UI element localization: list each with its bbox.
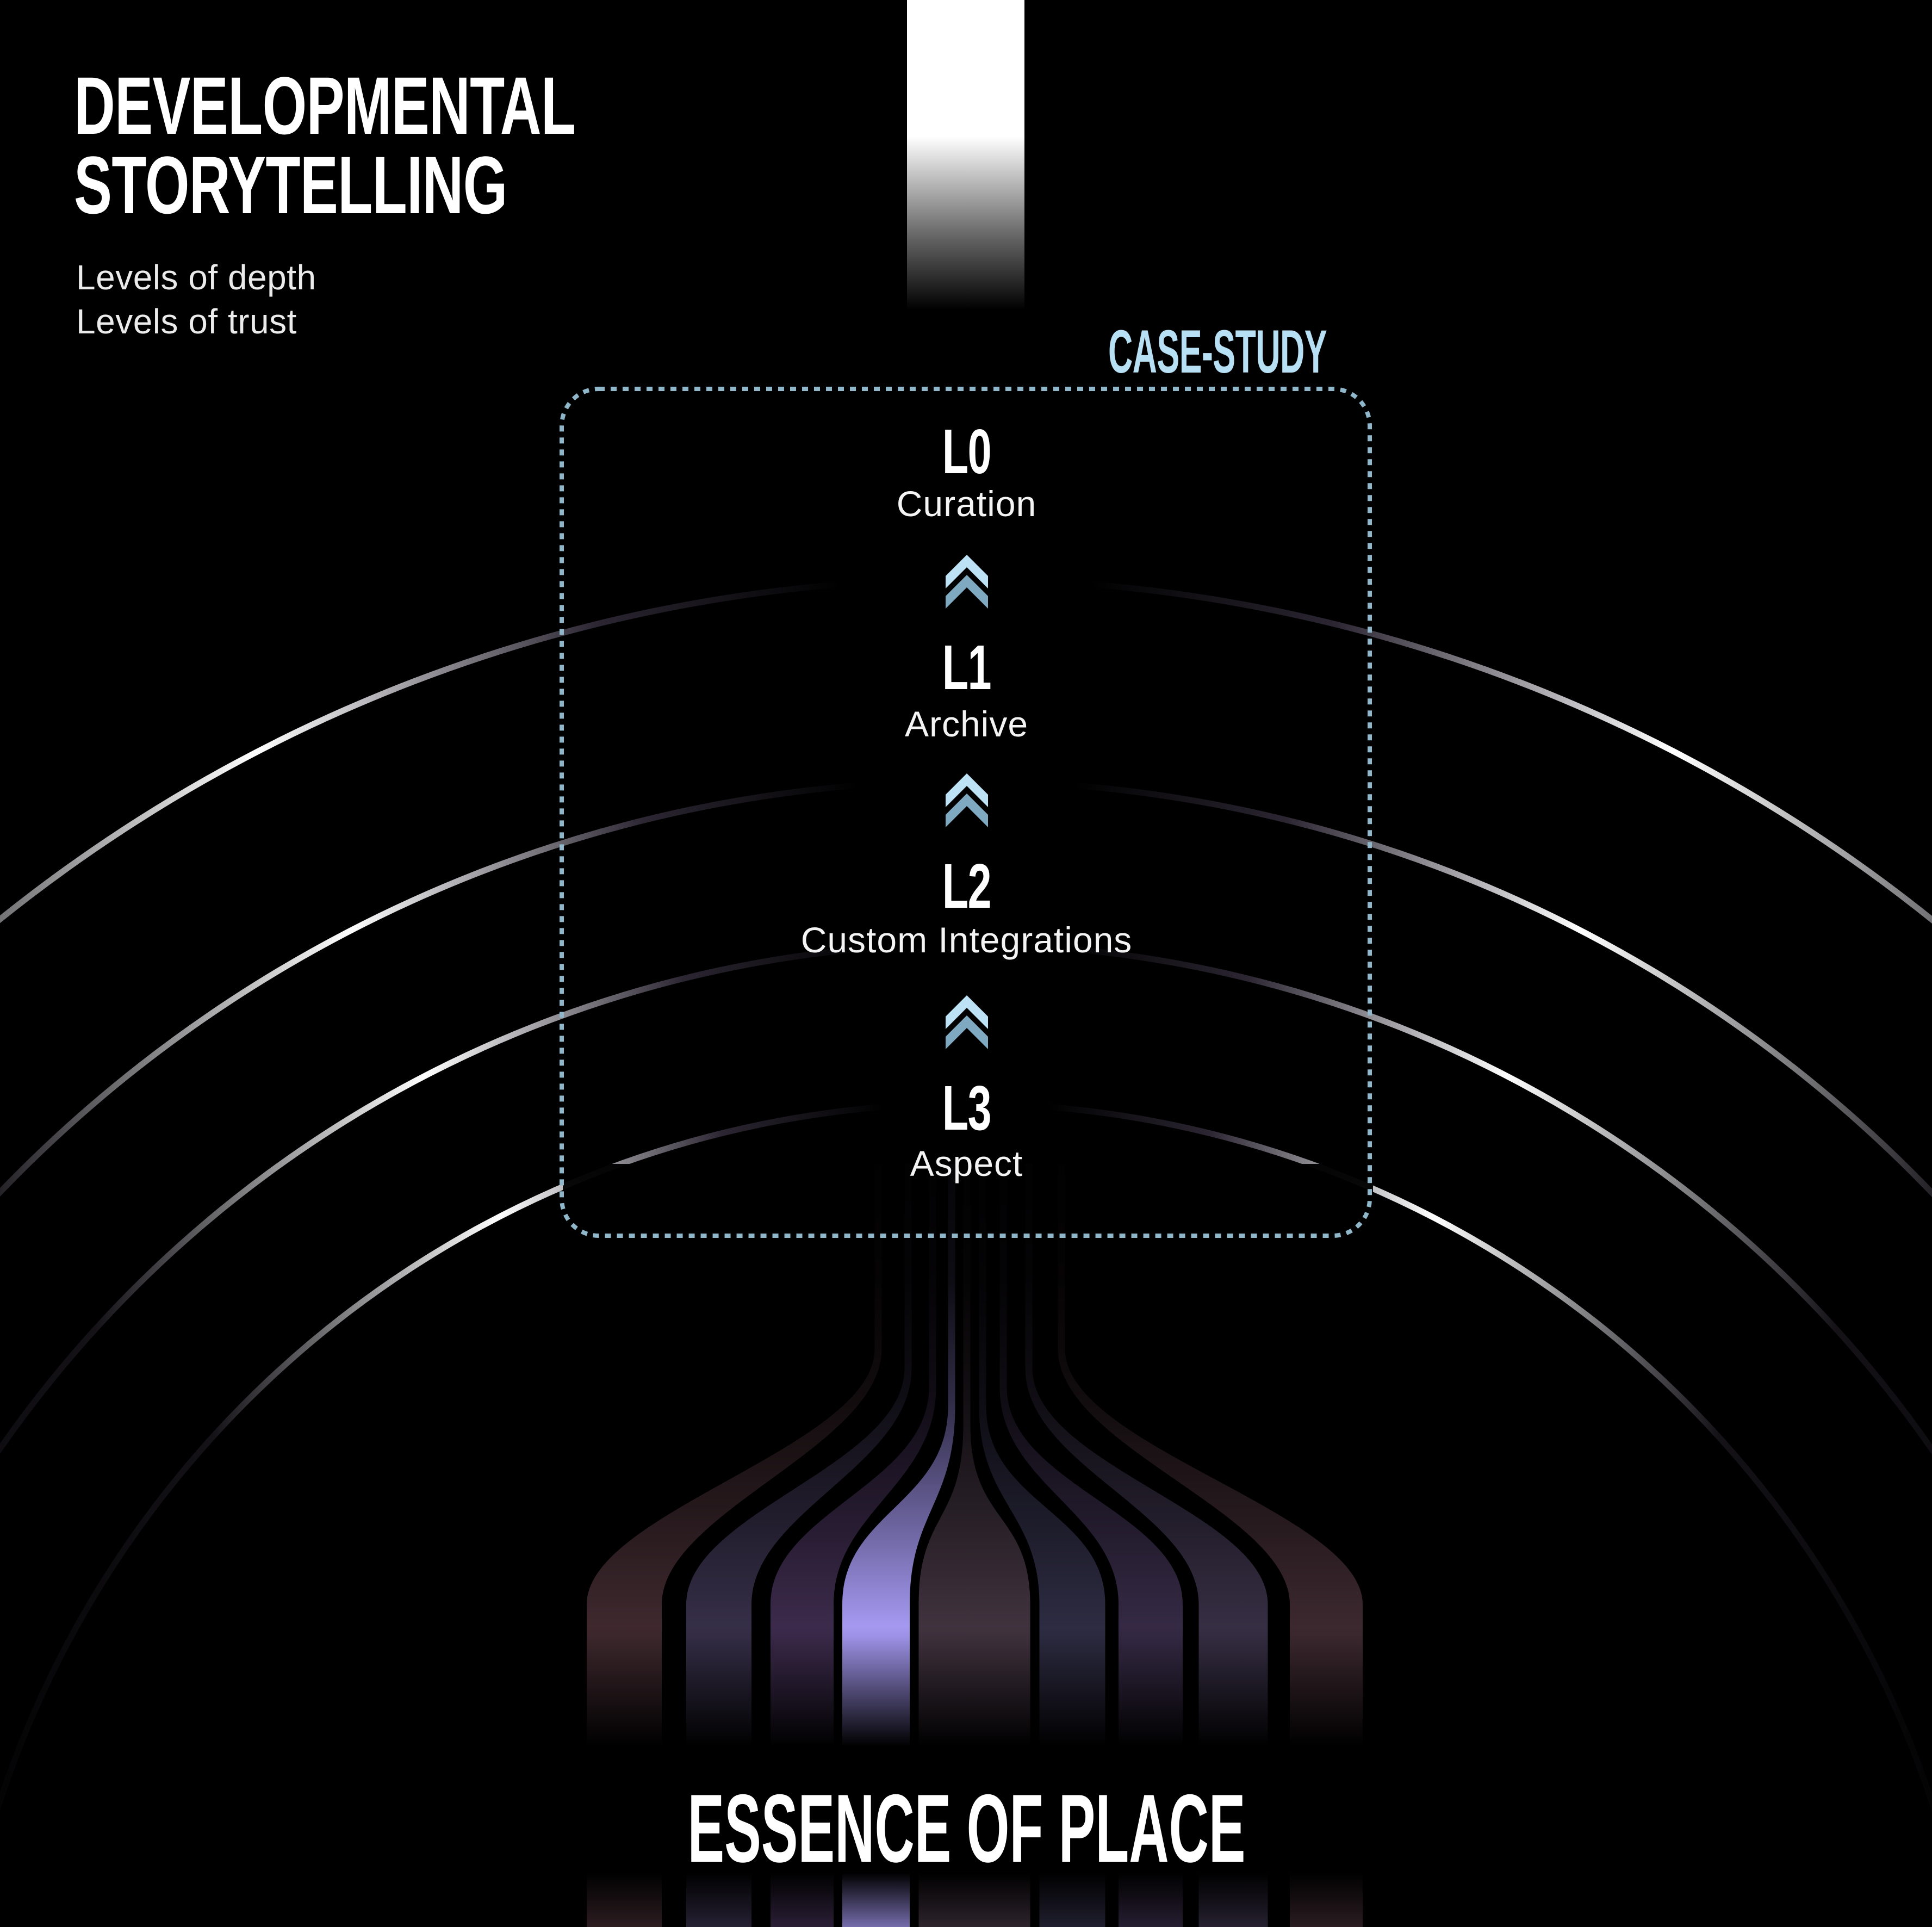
page-subtitle: Levels of depth Levels of trust xyxy=(76,256,316,344)
level-code-l3: L3 xyxy=(309,1071,1623,1144)
infographic-canvas: DEVELOPMENTAL STORYTELLING Levels of dep… xyxy=(0,0,1932,1927)
level-code-l0: L0 xyxy=(309,415,1623,488)
level-label-l0: Curation xyxy=(1,483,1932,524)
page-title-line1: DEVELOPMENTAL xyxy=(74,66,575,146)
level-label-l2: Custom Integrations xyxy=(1,919,1932,961)
page-title: DEVELOPMENTAL STORYTELLING xyxy=(74,66,575,225)
chevron-up-icon xyxy=(946,995,988,1049)
level-label-l3: Aspect xyxy=(1,1143,1932,1184)
page-title-line2: STORYTELLING xyxy=(74,146,575,225)
level-code-l2: L2 xyxy=(309,850,1623,922)
page-subtitle-line1: Levels of depth xyxy=(76,256,316,300)
top-light-beam xyxy=(907,0,1024,310)
page-subtitle-line2: Levels of trust xyxy=(76,300,316,344)
footer-title: ESSENCE OF PLACE xyxy=(416,1773,1517,1884)
chevron-up-icon xyxy=(946,555,988,609)
case-study-label: CASE-STUDY xyxy=(1108,317,1327,387)
chevron-up-icon xyxy=(946,773,988,827)
level-code-l1: L1 xyxy=(309,631,1623,704)
level-label-l1: Archive xyxy=(1,703,1932,745)
